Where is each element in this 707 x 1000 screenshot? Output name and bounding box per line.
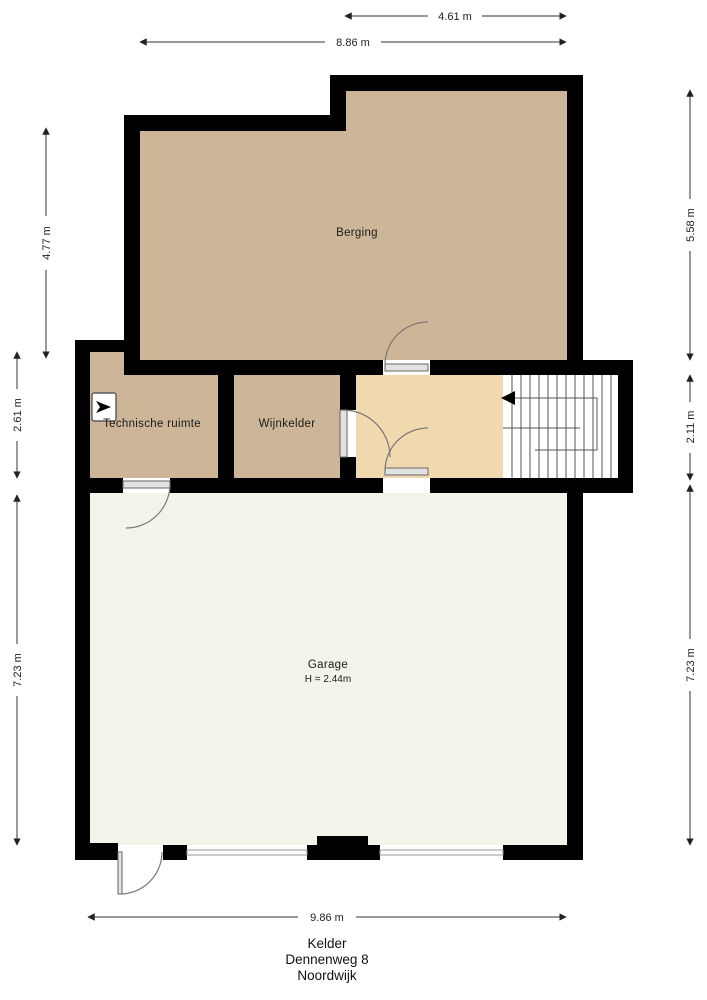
wall	[218, 375, 234, 478]
wall	[75, 843, 118, 860]
room-label-technische-ruimte: Technische ruimte	[103, 418, 201, 430]
title-block: Kelder Dennenweg 8 Noordwijk	[285, 936, 368, 983]
wall	[330, 75, 583, 91]
wall	[430, 360, 633, 375]
room-berging-floor	[140, 91, 567, 360]
door-leaf	[123, 481, 170, 488]
wall	[163, 845, 187, 860]
wall	[124, 115, 140, 375]
plan-title-floor: Kelder	[307, 936, 347, 951]
door-swing-arc	[120, 852, 162, 894]
dim-label-top-inner: 4.61 m	[438, 11, 472, 23]
room-label-berging: Berging	[336, 227, 378, 239]
wall	[430, 478, 633, 493]
room-label-garage: Garage	[308, 659, 348, 671]
plan-title-city: Noordwijk	[297, 968, 357, 983]
wall	[340, 457, 356, 478]
wall	[124, 360, 383, 375]
door-leaf	[385, 468, 428, 475]
window-garage-right	[380, 850, 503, 855]
dim-label-right-middle: 2.11 m	[685, 411, 697, 444]
stairwell-floor	[503, 375, 618, 478]
door-leaf	[118, 852, 122, 894]
wall-chimney-bump	[317, 836, 368, 845]
floor-plan-canvas: 4.61 m 8.86 m 4.77 m 2.61 m 7.23 m 5.58 …	[0, 0, 707, 1000]
wall	[503, 845, 583, 860]
wall	[90, 478, 123, 493]
wall	[618, 360, 633, 493]
wall	[75, 340, 124, 352]
wall	[307, 845, 380, 860]
room-label-garage-height: H = 2.44m	[305, 674, 351, 685]
room-label-wijnkelder: Wijnkelder	[259, 418, 316, 430]
door-leaf	[385, 364, 428, 371]
plan-title-street: Dennenweg 8	[285, 952, 368, 967]
dim-label-bottom: 9.86 m	[310, 912, 344, 924]
door-garage-exterior	[118, 852, 162, 894]
wall	[567, 493, 583, 860]
wall	[75, 340, 90, 860]
wall	[340, 375, 356, 410]
dim-label-top-outer: 8.86 m	[336, 37, 370, 49]
ventilation-unit-icon	[92, 393, 116, 421]
door-leaf	[340, 410, 347, 457]
wall	[170, 478, 383, 493]
dim-label-left-lower: 7.23 m	[12, 653, 24, 687]
window-garage-left	[187, 850, 307, 855]
dim-label-right-lower: 7.23 m	[685, 648, 697, 682]
dim-label-right-upper: 5.58 m	[685, 208, 697, 242]
dim-label-left-middle: 2.61 m	[12, 398, 24, 432]
wall	[567, 75, 583, 375]
floor-plan-page: 4.61 m 8.86 m 4.77 m 2.61 m 7.23 m 5.58 …	[0, 0, 707, 1000]
dim-label-left-upper: 4.77 m	[41, 226, 53, 260]
wall	[124, 115, 346, 131]
